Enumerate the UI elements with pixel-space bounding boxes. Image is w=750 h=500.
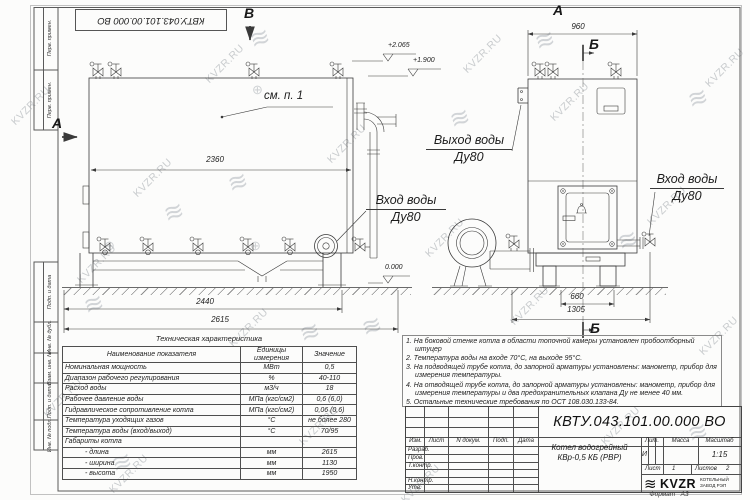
- note-item: 3. На подводящей трубе котла, до запорно…: [406, 364, 718, 380]
- dim-2615: 2615: [200, 315, 240, 324]
- spec-cell: м3/ч: [241, 384, 303, 395]
- spec-row: Диапазон рабочего регулирования%40-110: [63, 373, 357, 384]
- sheets-value: 2: [726, 466, 729, 472]
- callout-water-inlet-front: Вход воды Ду80: [366, 193, 446, 225]
- product-name: Котел водогрейный КВр-0,5 КБ (РВР): [538, 443, 641, 464]
- boiler-side-view: [62, 26, 441, 333]
- spec-row: Гидравлическое сопротивление котлаМПа (к…: [63, 405, 357, 416]
- boiler-base: [536, 253, 625, 286]
- row-prov: Пров.: [408, 455, 424, 461]
- spec-cell: [303, 437, 357, 448]
- product-name-line1: Котел водогрейный: [538, 443, 641, 453]
- spec-row: - высотамм1950: [63, 468, 357, 479]
- elev-2065: +2.065: [388, 42, 410, 49]
- see-note-leader: [221, 107, 333, 118]
- section-letter-b-top: Б: [589, 36, 599, 52]
- dim-1305: 1305: [558, 305, 594, 314]
- inverted-doc-number-stamp: КВТУ.043.101.00.000 ВО: [75, 9, 227, 31]
- title-block: КВТУ.043.101.00.000 ВО Изм. Лист N докум…: [405, 406, 742, 493]
- spec-cell: Температура уходящих газов: [63, 415, 241, 426]
- row-tkontr: Т.контр.: [408, 463, 432, 469]
- spec-cell: 70/95: [303, 426, 357, 437]
- spec-header-cell: Наименование показателя: [63, 347, 241, 363]
- spec-cell: Номинальная мощность: [63, 363, 241, 374]
- spec-cell: 0,6 (6,0): [303, 394, 357, 405]
- spec-cell: МПа (кгс/см2): [241, 394, 303, 405]
- format-value: А3: [681, 491, 689, 498]
- spec-cell: Гидравлическое сопротивление котла: [63, 405, 241, 416]
- spec-cell: 0,5: [303, 363, 357, 374]
- col-ndoc: N докум.: [449, 438, 488, 444]
- spec-cell: Рабочее давление воды: [63, 394, 241, 405]
- spec-row: Габариты котла: [63, 437, 357, 448]
- logo-sub2: ЗАВОД РЭП: [700, 483, 726, 488]
- kvzr-logo-text: KVZR: [660, 477, 696, 491]
- spec-cell: - высота: [63, 468, 241, 479]
- elev-0000: 0.000: [385, 264, 403, 271]
- margin-label: Взам. инв. №: [47, 351, 53, 385]
- margin-label: Перв. примен.: [47, 82, 53, 119]
- dim-2360: 2360: [195, 155, 235, 164]
- callout-water-inlet-side: Вход воды Ду80: [650, 172, 724, 204]
- row-razrab: Разраб.: [408, 447, 430, 453]
- format-strip: Формат А3: [598, 491, 740, 498]
- dim-660: 660: [562, 292, 592, 301]
- callout-line2: Ду80: [366, 210, 446, 225]
- row-nkontr: Н.контр.: [408, 478, 433, 484]
- outlet-elbow: [352, 103, 396, 258]
- sheet-label: Лист: [645, 466, 660, 472]
- elev-1900: +1.900: [413, 57, 435, 64]
- margin-label: Подп. и дата: [47, 384, 53, 418]
- spec-cell: мм: [241, 447, 303, 458]
- spec-row: - ширинамм1130: [63, 458, 357, 469]
- spec-cell: 40-110: [303, 373, 357, 384]
- spec-table-title: Техническая характеристика: [62, 334, 356, 343]
- notes-list: 1. На боковой стенке котла в области топ…: [406, 338, 718, 408]
- scale-value: 1:15: [698, 450, 741, 459]
- product-name-line2: КВр-0,5 КБ (РВР): [538, 453, 641, 463]
- spec-cell: Габариты котла: [63, 437, 241, 448]
- spec-header-cell: Единицы измерения: [241, 347, 303, 363]
- spec-cell: мм: [241, 458, 303, 469]
- col-list: Лист: [425, 438, 448, 444]
- spec-row: Номинальная мощностьМВт0,5: [63, 363, 357, 374]
- margin-label: Перв. примен.: [47, 20, 53, 57]
- spec-cell: не более 280: [303, 415, 357, 426]
- note-item: 2. Температура воды на входе 70°С, на вы…: [406, 355, 718, 363]
- section-letter-b-bottom: Б: [590, 320, 600, 336]
- spec-cell: - ширина: [63, 458, 241, 469]
- spec-header-cell: Значение: [303, 347, 357, 363]
- callout-water-outlet: Выход воды Ду80: [426, 133, 512, 165]
- spec-row: Температура уходящих газов°Сне более 280: [63, 415, 357, 426]
- sheets-label: Листов: [695, 466, 717, 472]
- format-label: Формат: [649, 491, 675, 498]
- note-item: 4. На отводящей трубе котла, до запорной…: [406, 382, 718, 398]
- boiler-supports: [75, 253, 346, 287]
- margin-label: Инв. № дубл.: [47, 320, 53, 354]
- spec-cell: - длина: [63, 447, 241, 458]
- callout-line1: Вход воды: [650, 172, 724, 189]
- dimensions-right-view: [512, 30, 650, 323]
- spec-cell: °С: [241, 415, 303, 426]
- spec-header-row: Наименование показателя Единицы измерени…: [63, 347, 357, 363]
- note-item: 1. На боковой стенке котла в области топ…: [406, 338, 718, 354]
- furnace-door: [558, 186, 617, 249]
- massa-label: Масса: [663, 438, 698, 444]
- spec-table: Наименование показателя Единицы измерени…: [62, 346, 357, 480]
- col-podp: Подп.: [489, 438, 513, 444]
- spec-row: Рабочее давление водыМПа (кгс/см2)0,6 (6…: [63, 394, 357, 405]
- spec-cell: 1130: [303, 458, 357, 469]
- doc-number: КВТУ.043.101.00.000 ВО: [538, 407, 741, 437]
- scale-label: Масштаб: [698, 438, 741, 444]
- drawing-sheet: KVZR.RU KVZR.RU KVZR.RU KVZR.RU KVZR.RU …: [0, 0, 750, 500]
- spec-cell: 0,06 (0,6): [303, 405, 357, 416]
- logo-sub1: КОТЕЛЬНЫЙ: [700, 477, 729, 482]
- blower-fan: [448, 219, 534, 286]
- dim-960: 960: [563, 22, 593, 31]
- spec-cell: Расход воды: [63, 384, 241, 395]
- spec-row: - длинамм2615: [63, 447, 357, 458]
- dim-2440: 2440: [185, 297, 225, 306]
- callout-line2: Ду80: [426, 150, 512, 165]
- lit-value: И: [641, 451, 648, 458]
- spec-cell: МПа (кгс/см2): [241, 405, 303, 416]
- row-utv: Утв.: [408, 485, 422, 491]
- spec-cell: 18: [303, 384, 357, 395]
- door-latch-icon: [576, 206, 587, 213]
- sheet-value: 1: [672, 466, 675, 472]
- callout-line2: Ду80: [650, 189, 724, 204]
- spec-cell: %: [241, 373, 303, 384]
- spec-cell: мм: [241, 468, 303, 479]
- spec-row: Температура воды (вход/выход)°С70/95: [63, 426, 357, 437]
- margin-label: Подп. и дата: [47, 275, 53, 309]
- callout-line1: Выход воды: [426, 133, 512, 150]
- spec-cell: Температура воды (вход/выход): [63, 426, 241, 437]
- spec-cell: Диапазон рабочего регулирования: [63, 373, 241, 384]
- view-letter-a-left: А: [52, 115, 62, 131]
- view-letter-v: В: [244, 5, 254, 21]
- inlet-flange: [315, 235, 338, 258]
- lit-label: Лит.: [641, 438, 663, 444]
- spec-cell: 2615: [303, 447, 357, 458]
- col-data: Дата: [514, 438, 538, 444]
- spec-cell: 1950: [303, 468, 357, 479]
- spec-row: Расход водым3/ч18: [63, 384, 357, 395]
- view-letter-a-top: А: [553, 2, 563, 18]
- outlet-flange: [518, 88, 528, 103]
- elevation-marks: [352, 54, 441, 283]
- dimensions-left-view: [64, 170, 398, 333]
- col-izm: Изм.: [407, 438, 424, 444]
- spec-cell: [241, 437, 303, 448]
- spec-cell: °С: [241, 426, 303, 437]
- spec-cell: МВт: [241, 363, 303, 374]
- callout-line1: Вход воды: [366, 193, 446, 210]
- margin-label: Инв. № подл.: [47, 418, 53, 452]
- upper-hatch: [597, 88, 625, 114]
- see-note-label: см. п. 1: [264, 90, 303, 102]
